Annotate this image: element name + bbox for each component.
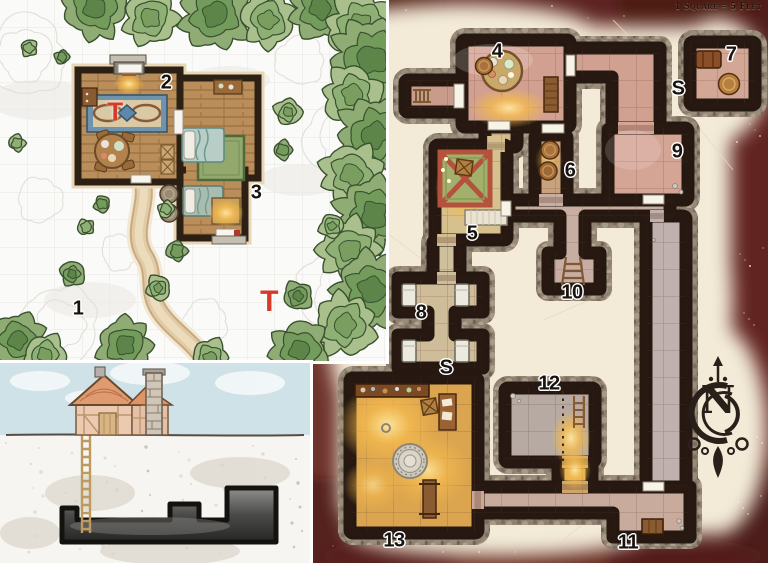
speckle [5,442,7,444]
speckle [220,463,223,466]
room-shape [433,240,460,278]
rug-icon [87,95,167,132]
door-icon [488,121,510,130]
speckle [753,324,755,326]
speckle [264,477,267,480]
door-icon [501,201,511,216]
speckle [587,17,589,19]
door-icon [643,482,664,491]
cross-section-panel [0,363,310,563]
speckle [144,445,147,448]
speckle [293,546,296,549]
wardrobe-icon [208,198,244,227]
speckle [514,551,515,552]
speckle [74,499,78,503]
speckle [749,123,750,124]
stone-chimney-stack [146,373,162,435]
speckle [30,463,32,465]
crate-icon [642,519,663,534]
speckle [289,498,291,500]
cross-section-art [0,363,310,563]
speckle [478,551,480,553]
speckle [261,452,265,456]
speckle [33,510,36,513]
speckle [442,551,444,553]
door-marker [234,230,240,236]
speckle [747,513,749,515]
speckle [295,458,297,460]
speckle [73,476,75,478]
speckle [188,459,191,462]
speckle [190,483,192,485]
door-icon [118,64,142,73]
speckle [762,247,763,248]
overworld-map-art [0,0,386,361]
tree-icon [21,40,36,56]
overworld-map-panel: 1 2 3 T T [0,0,386,361]
speckle [754,129,756,131]
speckle [739,253,741,255]
shelf-icon [544,77,558,112]
tree-icon [78,219,94,234]
speckle [749,265,751,267]
speckle [296,481,300,485]
speckle [141,510,143,512]
speckle [551,5,553,7]
speckle [736,141,738,143]
room-shape [405,80,460,112]
tunnel-highlight [70,517,230,535]
door-icon [643,195,664,204]
tree-icon [59,262,84,286]
speckle [112,553,115,556]
speckle [71,452,74,455]
door-icon [174,110,183,134]
speckle [756,436,758,438]
rug-icon [440,152,490,205]
table-icon [439,394,456,430]
speckle [405,9,407,11]
desk-icon [214,80,242,94]
speckle [759,135,761,137]
battle-map-image: N [0,0,768,563]
speckle [744,259,746,261]
speckle [79,548,81,550]
crate-icon [161,145,174,174]
chimney-icon [95,367,105,377]
shelf-icon [355,384,429,397]
speckle [743,312,744,313]
speckle [299,506,302,509]
speckle [219,552,221,554]
crate-icon [421,398,438,415]
porch-step [212,236,246,244]
door-icon [542,124,564,133]
speckle [185,546,189,550]
speckle [147,470,150,473]
speckle [623,15,624,16]
speckle [761,442,763,444]
door-icon [131,175,151,183]
speckle [178,451,180,453]
speckle [301,530,303,532]
round-table-icon [94,129,135,172]
speckle [103,456,106,459]
speckle [101,544,105,548]
speckle [38,447,40,449]
speckle [41,494,44,497]
speckle [332,545,333,546]
speckle [179,474,182,477]
speckle [252,445,254,447]
speckle [737,501,739,503]
room-shape [646,216,686,487]
door-icon [566,55,575,76]
crate-icon [455,159,473,176]
speckle [182,499,185,502]
speckle [748,318,750,320]
speckle [114,465,116,467]
speckle [27,550,30,553]
mosaic-circle-icon [393,444,427,478]
speckle [742,507,744,509]
door-icon [454,84,464,108]
speckle [290,521,293,524]
speckle [65,492,67,494]
barrel-icon [476,58,493,75]
speckle [214,503,217,506]
speckle [254,469,256,471]
bed-icon [182,128,224,162]
speckle [106,481,108,483]
dresser-icon [82,88,97,106]
tree-icon [284,281,312,309]
speckle [149,494,151,496]
speckle [36,535,39,538]
speckle [39,470,43,474]
speckle [115,488,119,492]
speckle [32,487,34,489]
speckle [760,495,761,496]
speckle [108,505,110,507]
